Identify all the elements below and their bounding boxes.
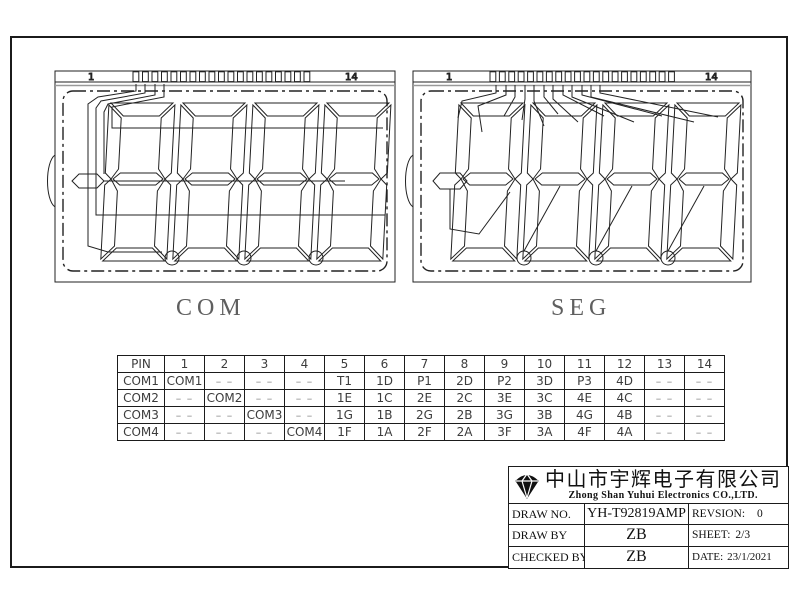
trace-tick <box>133 72 139 82</box>
seg-glass-left-bump <box>406 155 414 207</box>
trace-tick <box>612 72 618 82</box>
trace-tick <box>171 72 177 82</box>
pin-table-header-cell: 1 <box>165 356 205 373</box>
trace-tick <box>556 72 562 82</box>
pin-table-header-cell: 8 <box>445 356 485 373</box>
date-label: DATE: <box>692 551 723 563</box>
pin-table-cell: COM1 <box>165 373 205 390</box>
trace-tick <box>219 72 225 82</box>
sheet-value: 2/3 <box>735 529 750 541</box>
pin-table-header-cell: 2 <box>205 356 245 373</box>
pin-table-header-cell: 12 <box>605 356 645 373</box>
com-pin1-label: 1 <box>88 72 94 83</box>
com-routing-wire <box>104 84 155 174</box>
revision-value: 0 <box>757 508 763 520</box>
pin-table-cell: P1 <box>405 373 445 390</box>
com-trace-ticks <box>133 72 310 82</box>
date-cell: DATE: 23/1/2021 <box>689 547 788 568</box>
trace-tick <box>285 72 291 82</box>
seg-pin1-label: 1 <box>446 72 452 83</box>
pin-table-cell: – – <box>285 407 325 424</box>
pin-table-row: COM1COM1– –– –– –T11DP12DP23DP34D– –– – <box>118 373 725 390</box>
draw-no-value: YH-T92819AMP <box>585 504 689 525</box>
pin-table-cell: 3D <box>525 373 565 390</box>
draw-no-label: DRAW NO. <box>509 504 585 525</box>
pin-table-header-row: PIN1234567891011121314 <box>118 356 725 373</box>
trace-tick <box>546 72 552 82</box>
trace-tick <box>537 72 543 82</box>
trace-tick <box>238 72 244 82</box>
revision-label: REVSION: <box>692 508 745 520</box>
pin-table-row: COM3– –– –COM3– –1G1B2G2B3G3B4G4B– –– – <box>118 407 725 424</box>
pin-table-cell: 2B <box>445 407 485 424</box>
pin-table-header-cell: 6 <box>365 356 405 373</box>
seg-display-drawing: 1 14 <box>406 71 752 282</box>
pin-table-row: COM4– –– –– –COM41F1A2F2A3F3A4F4A– –– – <box>118 424 725 441</box>
pin-assignment-table: PIN1234567891011121314COM1COM1– –– –– –T… <box>117 355 725 441</box>
seg-caption: SEG <box>551 295 611 322</box>
trace-tick <box>228 72 234 82</box>
pin-table-row-label: COM2 <box>118 390 165 407</box>
pin-table-cell: 1B <box>365 407 405 424</box>
com-routing-wire <box>96 84 385 215</box>
pin-table-cell: 1A <box>365 424 405 441</box>
lcd-glass-drawings: 1 14 1 14 <box>0 0 800 344</box>
pin-table-cell: T1 <box>325 373 365 390</box>
pin-table-cell: 2E <box>405 390 445 407</box>
checked-by-value: ZB <box>585 547 689 568</box>
trace-tick <box>528 72 534 82</box>
com-display-drawing: 1 14 <box>48 71 396 282</box>
pin-table-cell: – – <box>645 424 685 441</box>
pin-table-cell: COM2 <box>205 390 245 407</box>
com-pin-strip <box>55 71 395 82</box>
sheet-label: SHEET: <box>692 529 730 541</box>
pin-table-cell: 3A <box>525 424 565 441</box>
trace-tick <box>622 72 628 82</box>
pin-table-header-cell: 11 <box>565 356 605 373</box>
trace-tick <box>304 72 310 82</box>
pin-table-cell: COM3 <box>245 407 285 424</box>
pin-table-header-cell: 5 <box>325 356 365 373</box>
date-value: 23/1/2021 <box>727 551 772 563</box>
pin-table-cell: 2G <box>405 407 445 424</box>
trace-tick <box>593 72 599 82</box>
trace-tick <box>181 72 187 82</box>
seg-digit-2 <box>523 103 597 261</box>
pin-table-cell: – – <box>685 390 725 407</box>
trace-tick <box>295 72 301 82</box>
pin-table-cell: 2D <box>445 373 485 390</box>
pin-table-header-cell: 7 <box>405 356 445 373</box>
sheet-cell: SHEET: 2/3 <box>689 525 788 546</box>
pin-table-cell: 2F <box>405 424 445 441</box>
trace-tick <box>631 72 637 82</box>
trace-tick <box>659 72 665 82</box>
trace-tick <box>190 72 196 82</box>
pin-table-cell: – – <box>685 373 725 390</box>
pin-table-cell: – – <box>685 407 725 424</box>
trace-tick <box>518 72 524 82</box>
pin-table-cell: 4E <box>565 390 605 407</box>
pin-table-cell: COM4 <box>285 424 325 441</box>
pin-table-cell: – – <box>165 407 205 424</box>
pin-table-cell: 4B <box>605 407 645 424</box>
draw-by-label: DRAW BY <box>509 525 585 546</box>
seg-dp-routing-diagonal <box>524 186 560 251</box>
seg-pin-strip <box>413 71 751 82</box>
seg-pin14-label: 14 <box>705 72 718 83</box>
pin-table-cell: 3B <box>525 407 565 424</box>
trace-tick <box>669 72 675 82</box>
trace-tick <box>603 72 609 82</box>
pin-table-cell: 2A <box>445 424 485 441</box>
pin-table-cell: – – <box>205 407 245 424</box>
pin-table-cell: 4F <box>565 424 605 441</box>
pin-table-cell: 4D <box>605 373 645 390</box>
trace-tick <box>266 72 272 82</box>
pin-table-row: COM2– –COM2– –– –1E1C2E2C3E3C4E4C– –– – <box>118 390 725 407</box>
trace-tick <box>565 72 571 82</box>
pin-table-cell: – – <box>245 424 285 441</box>
pin-table-cell: – – <box>285 390 325 407</box>
title-block: 中山市宇辉电子有限公司 Zhong Shan Yuhui Electronics… <box>508 466 789 569</box>
trace-tick <box>200 72 206 82</box>
seg-digit-4 <box>667 103 741 261</box>
pin-table-cell: 1F <box>325 424 365 441</box>
draw-by-value: ZB <box>585 525 689 546</box>
pin-table-cell: 4A <box>605 424 645 441</box>
trace-tick <box>584 72 590 82</box>
seg-routing-wire <box>450 189 510 234</box>
pin-table-cell: 1E <box>325 390 365 407</box>
pin-table-header-cell: 14 <box>685 356 725 373</box>
trace-tick <box>209 72 215 82</box>
com-routing-wire <box>88 84 162 252</box>
pin-table-cell: 3F <box>485 424 525 441</box>
pin-table-cell: – – <box>165 390 205 407</box>
seg-digit-1 <box>451 103 525 261</box>
title-block-grid: DRAW NO. YH-T92819AMP REVSION: 0 DRAW BY… <box>509 504 788 568</box>
pin-table-cell: – – <box>165 424 205 441</box>
pin-table-cell: – – <box>285 373 325 390</box>
pin-table-cell: – – <box>685 424 725 441</box>
trace-tick <box>276 72 282 82</box>
title-block-company-row: 中山市宇辉电子有限公司 Zhong Shan Yuhui Electronics… <box>509 467 788 504</box>
trace-tick <box>575 72 581 82</box>
pin-table-row-label: COM1 <box>118 373 165 390</box>
pin-table-cell: – – <box>205 373 245 390</box>
revision-cell: REVSION: 0 <box>689 504 788 525</box>
checked-by-label: CHECKED BY <box>509 547 585 568</box>
company-name-chinese: 中山市宇辉电子有限公司 <box>545 470 782 490</box>
pin-table-cell: – – <box>645 373 685 390</box>
pin-table-cell: – – <box>645 407 685 424</box>
pin-table-cell: 1C <box>365 390 405 407</box>
com-digit-2 <box>173 103 247 261</box>
seg-routing-wire <box>563 85 604 116</box>
company-name-english: Zhong Shan Yuhui Electronics CO.,LTD. <box>569 491 758 501</box>
com-caption: COM <box>176 295 246 322</box>
trace-tick <box>152 72 158 82</box>
seg-routing-wire <box>544 85 558 114</box>
trace-tick <box>499 72 505 82</box>
pin-table-cell: 3G <box>485 407 525 424</box>
trace-tick <box>650 72 656 82</box>
pin-table-header-cell: 4 <box>285 356 325 373</box>
pin-table-cell: 4G <box>565 407 605 424</box>
seg-trace-ticks <box>490 72 674 82</box>
pin-table-header-cell: 9 <box>485 356 525 373</box>
pin-table-header-cell: 3 <box>245 356 285 373</box>
company-logo-gem-icon <box>512 471 542 500</box>
trace-tick <box>143 72 149 82</box>
pin-table-header-cell: 13 <box>645 356 685 373</box>
com-glass-left-bump <box>48 155 56 207</box>
pin-table-cell: – – <box>245 390 285 407</box>
com-digit-4 <box>317 103 391 261</box>
seg-dp-routing-diagonal <box>596 186 632 251</box>
pin-table-header-cell: PIN <box>118 356 165 373</box>
pin-table-cell: – – <box>245 373 285 390</box>
pin-table-row-label: COM3 <box>118 407 165 424</box>
pin-table-header-cell: 10 <box>525 356 565 373</box>
pin-table-cell: – – <box>645 390 685 407</box>
pin-table-cell: 3C <box>525 390 565 407</box>
seg-digit-3 <box>595 103 669 261</box>
pin-table-cell: 1D <box>365 373 405 390</box>
seg-routing-wire <box>600 85 718 117</box>
trace-tick <box>257 72 263 82</box>
pin-table-cell: 4C <box>605 390 645 407</box>
trace-tick <box>640 72 646 82</box>
trace-tick <box>247 72 253 82</box>
seg-routing-wire <box>478 85 506 132</box>
pin-table-cell: – – <box>205 424 245 441</box>
seg-dp-routing-diagonal <box>668 186 704 251</box>
trace-tick <box>490 72 496 82</box>
pin-table-cell: 3E <box>485 390 525 407</box>
com-digit-3 <box>245 103 319 261</box>
pin-table-cell: P2 <box>485 373 525 390</box>
com-pin14-label: 14 <box>345 72 358 83</box>
trace-tick <box>509 72 515 82</box>
trace-tick <box>162 72 168 82</box>
pin-table-cell: P3 <box>565 373 605 390</box>
pin-table-cell: 2C <box>445 390 485 407</box>
pin-table-row-label: COM4 <box>118 424 165 441</box>
pin-table-cell: 1G <box>325 407 365 424</box>
